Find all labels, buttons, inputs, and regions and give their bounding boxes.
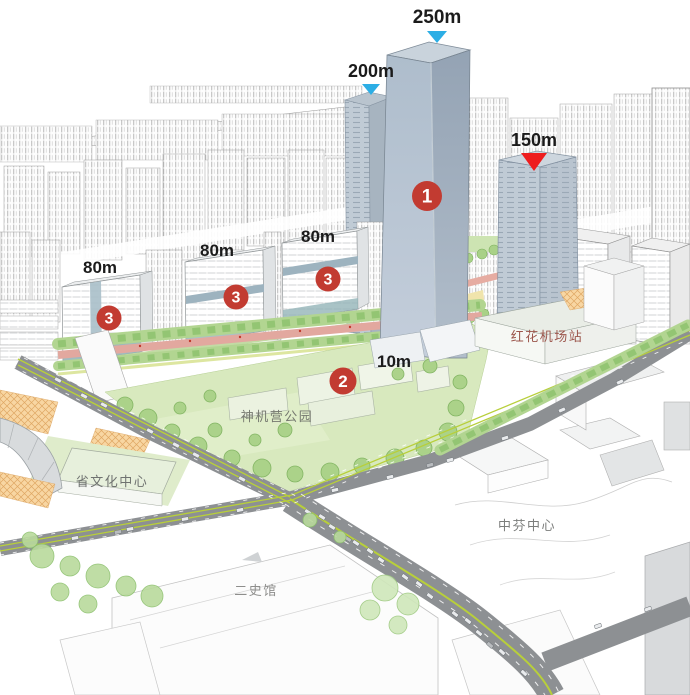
height-label-200m: 200m	[348, 61, 394, 81]
building-marker-3c: 3	[316, 267, 341, 292]
height-annotation-250m: 250m	[413, 7, 462, 43]
place-label-cultural-center: 省文化中心	[76, 475, 149, 490]
place-label-park: 神机营公园	[241, 410, 314, 425]
building-marker-1: 1	[412, 181, 442, 211]
place-label-sino-finland-center: 中芬中心	[498, 519, 556, 534]
marker-number: 2	[338, 372, 347, 391]
urban-design-rendering: 250m 200m 150m 80m 80m 80m 10m 1 2 3 3	[0, 0, 690, 695]
building-marker-3b: 3	[224, 285, 249, 310]
height-label-80m-2: 80m	[200, 241, 234, 260]
building-marker-3a: 3	[97, 306, 122, 331]
place-label-station: 红花机场站	[511, 329, 584, 345]
marker-number: 3	[232, 290, 241, 307]
height-label-250m: 250m	[413, 7, 462, 28]
place-label-archives: 二史馆	[234, 584, 278, 599]
building-marker-2: 2	[330, 368, 357, 395]
height-label-80m-3: 80m	[301, 227, 335, 246]
marker-number: 3	[105, 311, 114, 328]
height-label-150m: 150m	[511, 130, 557, 150]
marker-number: 1	[422, 187, 433, 208]
arrow-down-cyan-icon	[427, 31, 447, 43]
marker-number: 3	[324, 272, 333, 289]
height-label-80m-1: 80m	[83, 258, 117, 277]
height-label-10m: 10m	[377, 352, 411, 371]
